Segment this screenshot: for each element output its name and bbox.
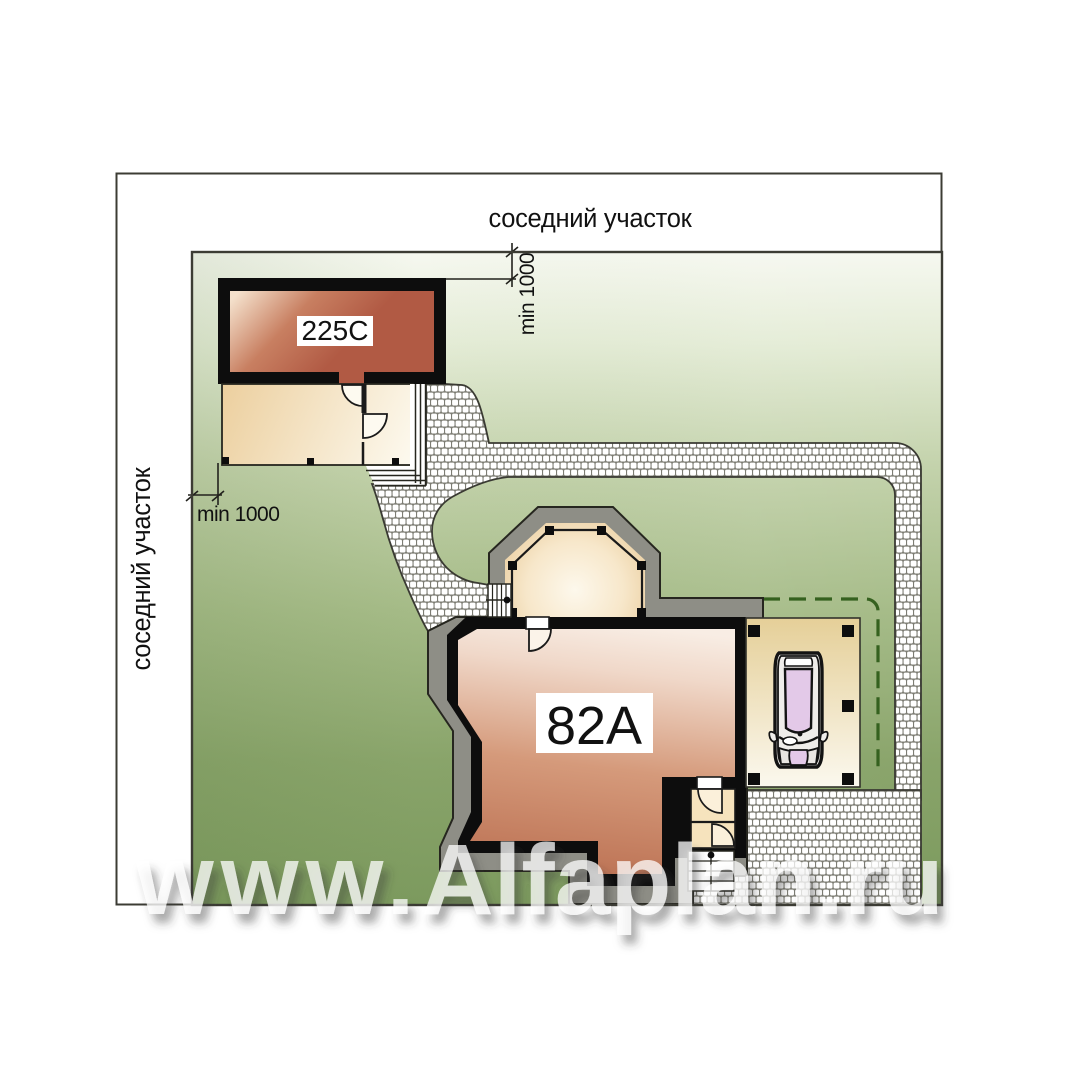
svg-text:www.Alfaplan.ru: www.Alfaplan.ru bbox=[135, 824, 944, 936]
svg-text:min 1000: min 1000 bbox=[516, 253, 539, 335]
svg-text:82A: 82A bbox=[546, 696, 642, 756]
svg-text:min 1000: min 1000 bbox=[197, 503, 279, 526]
svg-text:соседний участок: соседний участок bbox=[488, 205, 692, 233]
svg-text:соседний участок: соседний участок bbox=[128, 466, 156, 670]
svg-text:225C: 225C bbox=[302, 315, 369, 346]
